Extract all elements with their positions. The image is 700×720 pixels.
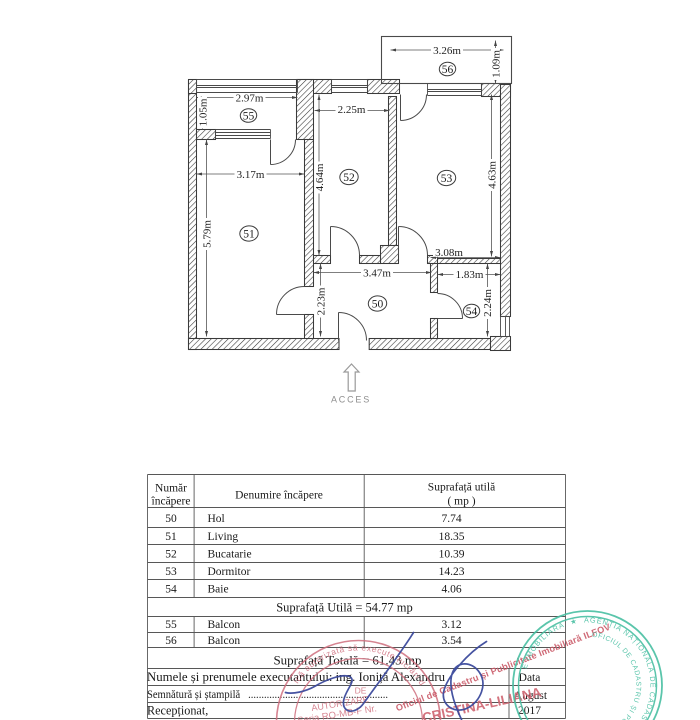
svg-text:1.83m: 1.83m (456, 269, 484, 281)
svg-text:3.54: 3.54 (441, 635, 461, 647)
svg-text:Dormitor: Dormitor (208, 566, 251, 578)
svg-text:50: 50 (165, 513, 177, 525)
svg-text:2.25m: 2.25m (338, 104, 366, 116)
svg-text:18.35: 18.35 (439, 531, 465, 543)
svg-text:Recepționat,: Recepționat, (147, 704, 208, 718)
svg-text:10.39: 10.39 (439, 549, 465, 561)
svg-text:Suprafață utilă: Suprafață utilă (428, 482, 495, 494)
svg-text:51: 51 (243, 229, 255, 241)
svg-text:56: 56 (442, 64, 454, 76)
svg-text:3.47m: 3.47m (363, 268, 391, 280)
svg-text:53: 53 (165, 566, 177, 578)
svg-text:51: 51 (165, 531, 177, 543)
svg-text:54: 54 (466, 306, 478, 318)
svg-text:Living: Living (208, 531, 239, 543)
svg-text:50: 50 (372, 299, 384, 311)
svg-text:Baie: Baie (208, 584, 229, 596)
svg-text:1.09m: 1.09m (491, 50, 503, 78)
svg-text:Balcon: Balcon (208, 619, 241, 631)
svg-text:încăpere: încăpere (151, 496, 191, 508)
svg-text:14.23: 14.23 (439, 566, 465, 578)
svg-text:56: 56 (165, 635, 177, 647)
svg-text:3.12: 3.12 (441, 619, 461, 631)
svg-text:2.23m: 2.23m (316, 287, 328, 315)
svg-text:55: 55 (243, 111, 255, 123)
svg-text:5.79m: 5.79m (202, 220, 214, 248)
svg-text:54: 54 (165, 584, 177, 596)
svg-text:4.63m: 4.63m (487, 161, 499, 189)
svg-text:3.17m: 3.17m (237, 169, 265, 181)
svg-text:( mp ): ( mp ) (447, 496, 475, 508)
svg-text:Bucatarie: Bucatarie (208, 549, 252, 561)
svg-text:Denumire încăpere: Denumire încăpere (235, 490, 323, 502)
svg-text:2.97m: 2.97m (236, 93, 264, 105)
svg-text:Hol: Hol (208, 513, 225, 525)
svg-text:Suprafață Utilă = 54.77 mp: Suprafață Utilă = 54.77 mp (276, 601, 413, 615)
svg-text:ACCES: ACCES (331, 395, 371, 405)
svg-text:3.08m: 3.08m (435, 247, 463, 259)
svg-text:2.24m: 2.24m (482, 289, 494, 317)
svg-text:7.74: 7.74 (441, 513, 461, 525)
svg-text:3.26m: 3.26m (433, 45, 461, 57)
svg-text:1.05m: 1.05m (198, 98, 210, 126)
svg-text:53: 53 (441, 173, 453, 185)
svg-text:55: 55 (165, 619, 177, 631)
svg-text:Data: Data (519, 672, 541, 684)
svg-text:Număr: Număr (155, 483, 187, 495)
svg-text:4.06: 4.06 (441, 584, 461, 596)
svg-text:52: 52 (165, 549, 177, 561)
svg-text:4.64m: 4.64m (314, 163, 326, 191)
svg-text:52: 52 (343, 172, 355, 184)
svg-text:Balcon: Balcon (208, 635, 241, 647)
